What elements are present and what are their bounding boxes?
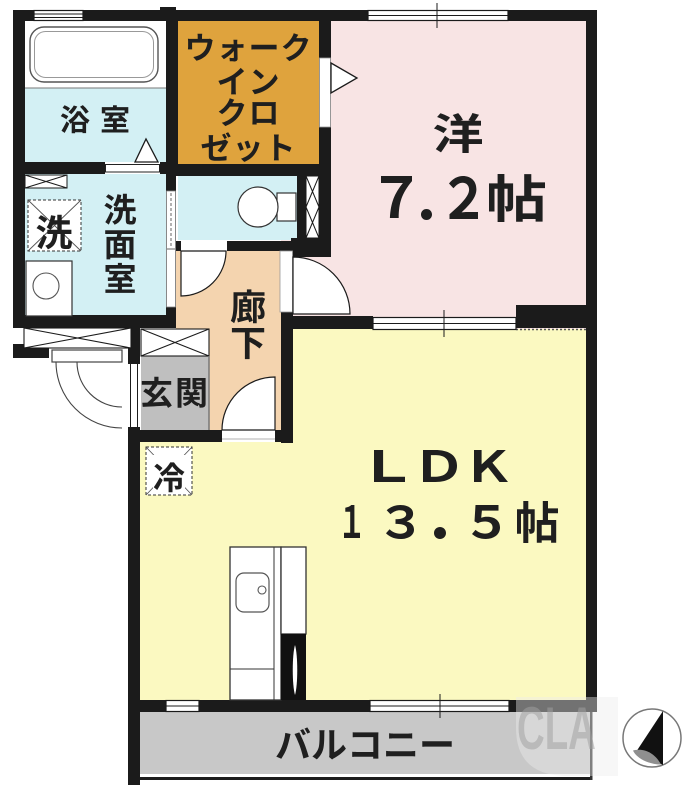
svg-text:CLA: CLA	[517, 694, 596, 762]
